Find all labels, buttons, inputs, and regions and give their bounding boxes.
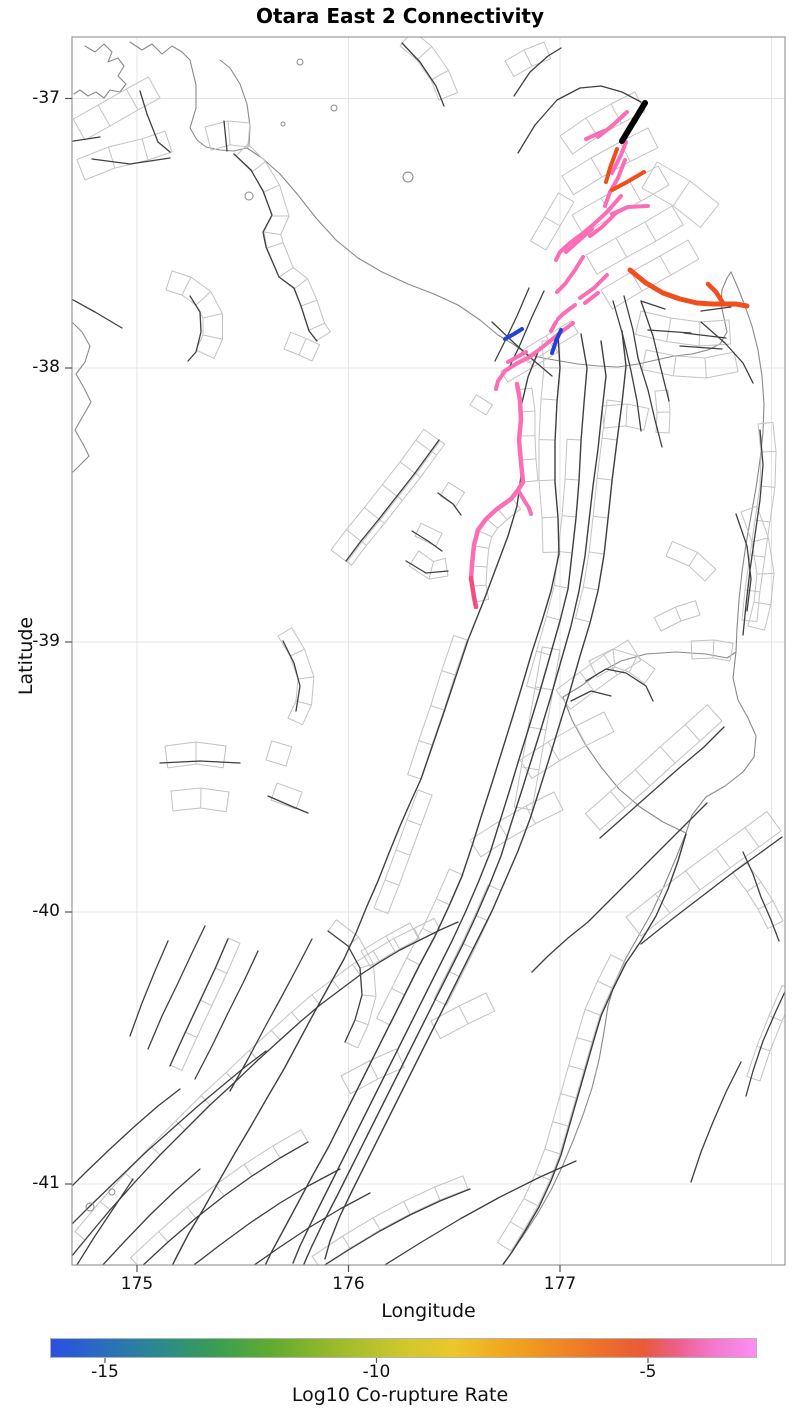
colorbar-label: Log10 Co-rupture Rate	[0, 1384, 800, 1406]
y-tick-label: -39	[8, 631, 60, 651]
y-tick-label: -38	[8, 357, 60, 377]
colorbar-gradient	[50, 1338, 757, 1358]
y-tick-label: -40	[8, 901, 60, 921]
fault-map-layers	[62, 31, 798, 1268]
y-tick-label: -41	[8, 1173, 60, 1193]
y-axis-label: Latitude	[15, 596, 37, 716]
gridlines	[72, 37, 785, 1265]
x-tick-label: 177	[530, 1274, 590, 1294]
y-tick-label: -37	[8, 88, 60, 108]
colorbar-tick-label: -5	[618, 1362, 678, 1382]
figure: Otara East 2 Connectivity Longitude Lati…	[0, 0, 800, 1418]
plot-frame	[72, 37, 785, 1265]
x-axis-label: Longitude	[72, 1300, 785, 1322]
x-tick-label: 175	[107, 1274, 167, 1294]
colorbar-tick-label: -10	[347, 1362, 407, 1382]
colorbar-tick-label: -15	[75, 1362, 135, 1382]
x-tick-label: 176	[319, 1274, 379, 1294]
map-canvas	[0, 0, 800, 1418]
